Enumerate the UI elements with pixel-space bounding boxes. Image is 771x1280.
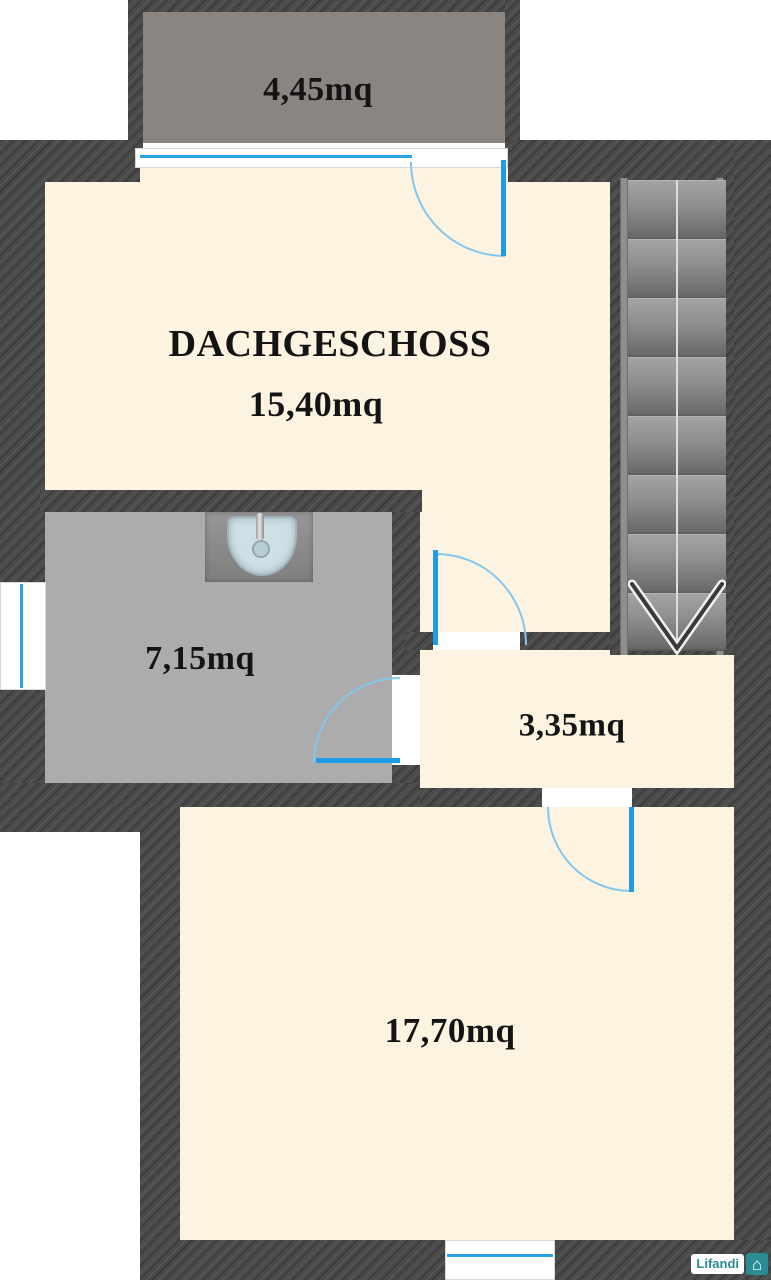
wall-hallway-bottom-left [420, 788, 542, 807]
door-leaf-balcony [501, 160, 506, 256]
hallway-area-label: 3,35mq [519, 708, 626, 745]
logo: Lifandi ⌂ [691, 1253, 768, 1275]
door-leaf-bedroom [629, 807, 634, 892]
wall-bathroom-top [40, 490, 422, 512]
sink-drain-icon [252, 540, 270, 558]
door-opening-bedroom [542, 788, 632, 807]
staircase [610, 140, 734, 655]
window-bottom-glass-line [447, 1254, 553, 1257]
house-icon: ⌂ [746, 1253, 768, 1275]
wall-left-upper [0, 140, 45, 582]
window-top-glass-line [140, 155, 412, 158]
window-bottom [445, 1240, 555, 1280]
wall-right [734, 140, 771, 1280]
door-leaf-bathroom [316, 758, 400, 763]
stairs-down-arrow-icon [628, 576, 726, 656]
bedroom-area-label: 17,70mq [385, 1011, 516, 1051]
stair-rail-left [620, 178, 628, 655]
wall-balcony-right [505, 0, 520, 148]
wall-balcony-top [128, 0, 520, 12]
wall-corridor-left [405, 632, 433, 650]
floor-plan: 4,45mq DACHGESCHOSS 15,40mq 7,15mq 3,35m… [0, 0, 771, 1280]
main-room-area-label: 15,40mq [249, 383, 384, 425]
wall-bottom-left [140, 1240, 445, 1280]
floor-title: DACHGESCHOSS [169, 322, 492, 366]
wall-bathroom-bottom [0, 783, 420, 807]
wall-bedroom-left [140, 807, 180, 1280]
wall-balcony-left [128, 0, 143, 148]
faucet-icon [256, 513, 264, 540]
logo-brand-text: Lifandi [691, 1254, 744, 1274]
wall-bathroom-right-upper [392, 512, 420, 675]
window-left-glass-line [20, 584, 23, 688]
bathroom-area-label: 7,15mq [145, 640, 255, 678]
balcony-area-label: 4,45mq [263, 71, 373, 109]
window-left [0, 582, 46, 690]
door-leaf-hallway [433, 550, 438, 645]
wall-hallway-bottom-right [632, 788, 734, 807]
